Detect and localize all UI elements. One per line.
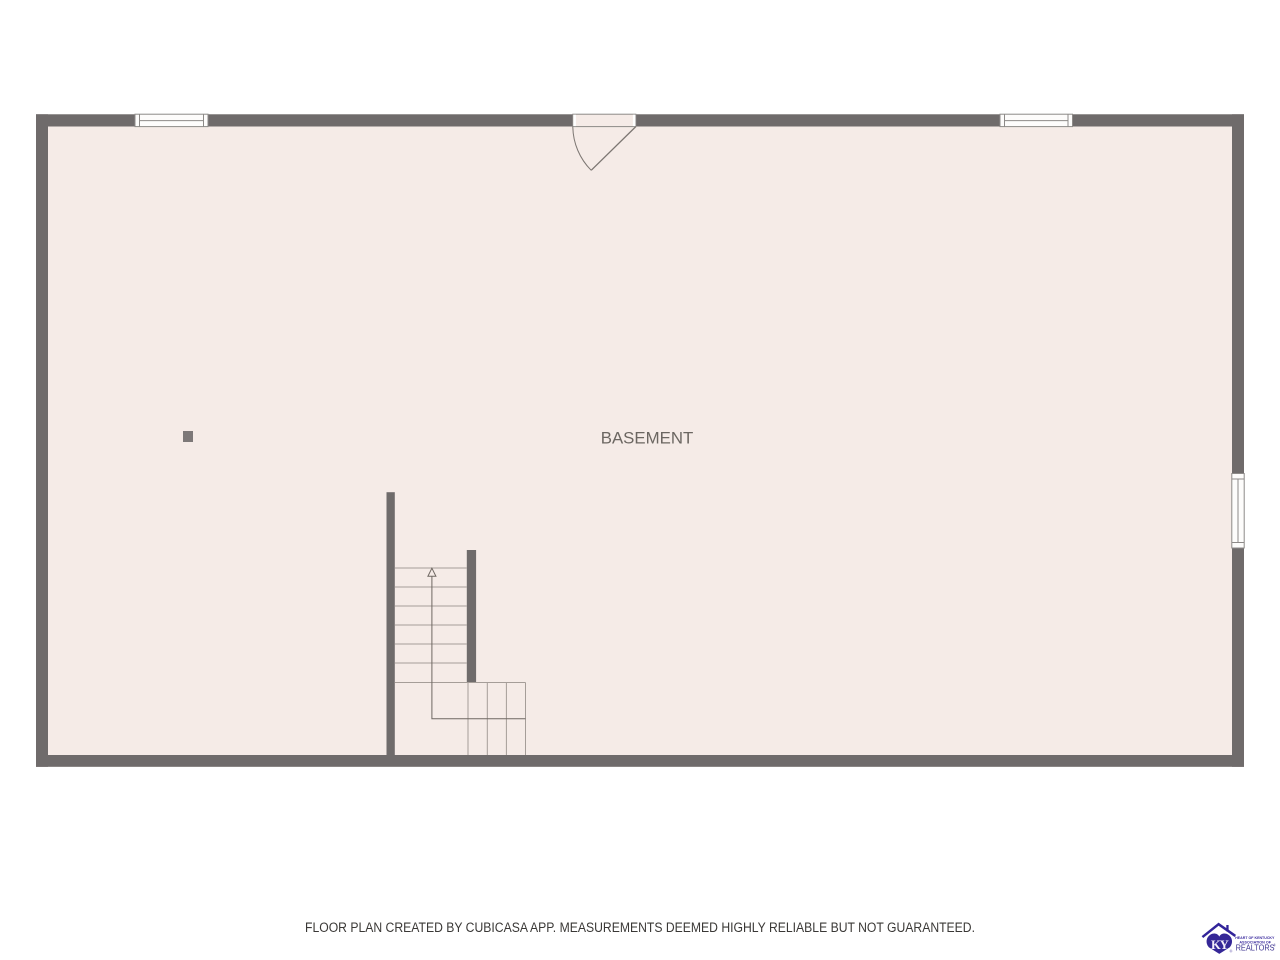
svg-text:KY: KY [1211,938,1229,952]
svg-text:BASEMENT: BASEMENT [601,428,694,447]
svg-text:REALTORS: REALTORS [1236,944,1275,953]
svg-text:FLOOR PLAN CREATED BY CUBICASA: FLOOR PLAN CREATED BY CUBICASA APP. MEAS… [305,920,975,935]
svg-text:®: ® [1230,949,1233,953]
svg-text:®: ® [1273,943,1276,947]
